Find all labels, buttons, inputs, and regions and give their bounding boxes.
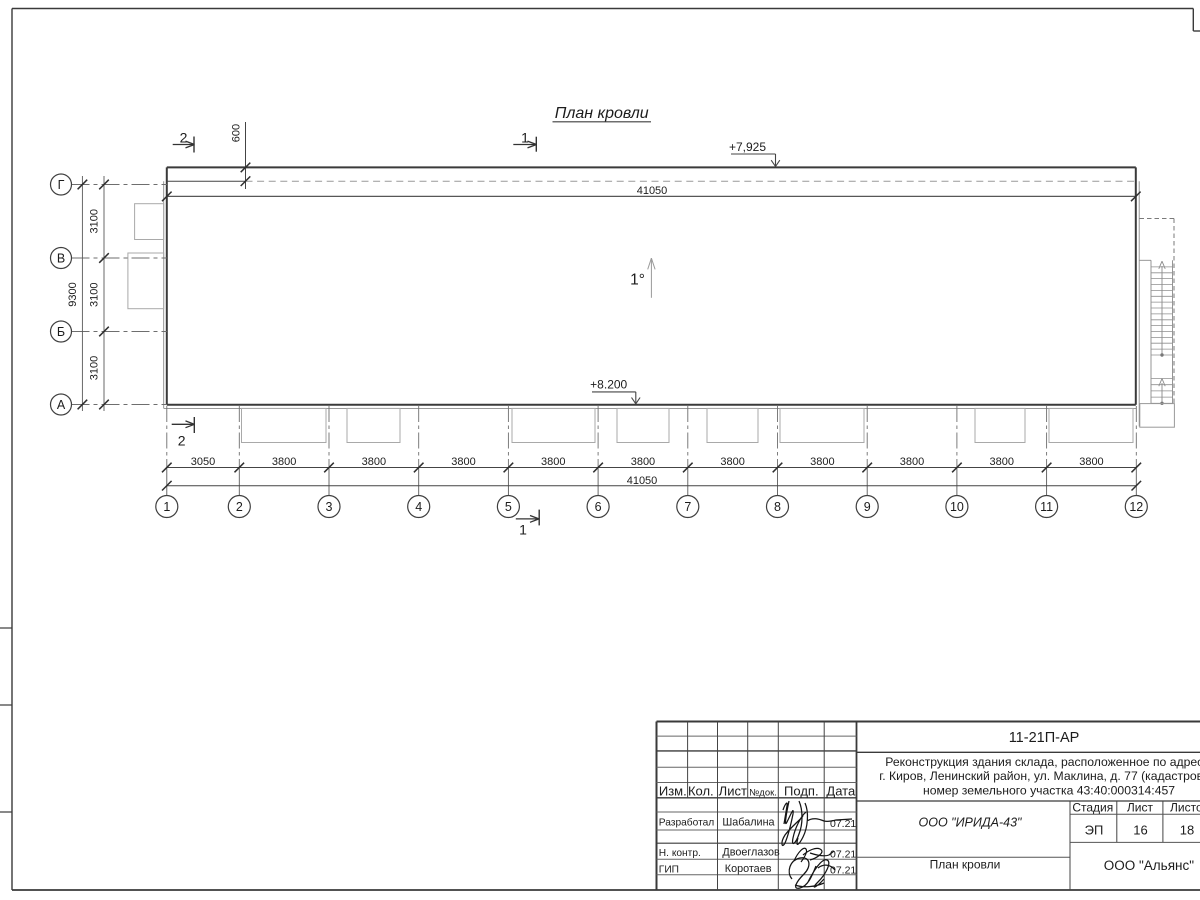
svg-text:№док.: №док.: [749, 788, 777, 799]
svg-text:5: 5: [505, 500, 512, 514]
svg-text:3800: 3800: [362, 456, 386, 468]
svg-text:3100: 3100: [89, 356, 101, 380]
svg-text:600: 600: [231, 124, 243, 142]
svg-text:Разработал: Разработал: [659, 817, 715, 829]
svg-text:3800: 3800: [631, 456, 655, 468]
svg-text:ЭП: ЭП: [1085, 823, 1104, 838]
svg-text:Лист: Лист: [719, 784, 747, 799]
svg-text:ГИП: ГИП: [659, 865, 679, 876]
svg-text:8: 8: [774, 500, 781, 514]
svg-text:3800: 3800: [990, 456, 1014, 468]
svg-text:Подп.: Подп.: [784, 784, 819, 799]
svg-text:Г: Г: [58, 178, 65, 192]
svg-text:+7,925: +7,925: [729, 140, 766, 154]
svg-text:Б: Б: [57, 325, 65, 339]
svg-text:3800: 3800: [720, 456, 744, 468]
svg-text:План кровли: План кровли: [555, 105, 649, 122]
svg-text:3050: 3050: [191, 456, 215, 468]
svg-text:1: 1: [521, 130, 529, 146]
svg-text:1: 1: [519, 522, 527, 538]
svg-text:3100: 3100: [89, 282, 101, 306]
svg-text:1°: 1°: [630, 272, 645, 289]
svg-text:+8.200: +8.200: [590, 378, 627, 392]
svg-text:41050: 41050: [627, 475, 658, 487]
svg-text:ООО "ИРИДА-43": ООО "ИРИДА-43": [919, 816, 1023, 830]
svg-text:Реконструкция здания склада, р: Реконструкция здания склада, расположенн…: [885, 755, 1200, 769]
svg-text:2: 2: [236, 500, 243, 514]
svg-text:4: 4: [415, 500, 422, 514]
svg-text:16: 16: [1133, 823, 1147, 838]
svg-text:07.21: 07.21: [830, 865, 856, 877]
svg-text:12: 12: [1129, 500, 1143, 514]
svg-text:Коротаев: Коротаев: [725, 863, 772, 875]
svg-text:ООО "Альянс": ООО "Альянс": [1104, 858, 1194, 873]
svg-text:2: 2: [178, 433, 186, 449]
svg-text:Стадия: Стадия: [1072, 801, 1113, 815]
svg-text:В: В: [57, 251, 65, 265]
svg-text:11-21П-АР: 11-21П-АР: [1009, 730, 1080, 746]
svg-text:3: 3: [326, 500, 333, 514]
svg-text:Н. контр.: Н. контр.: [659, 848, 701, 859]
svg-text:3800: 3800: [272, 456, 296, 468]
svg-text:г. Киров, Ленинский район, ул.: г. Киров, Ленинский район, ул. Маклина, …: [879, 769, 1200, 783]
svg-text:41050: 41050: [637, 185, 668, 197]
svg-text:9300: 9300: [67, 282, 79, 306]
svg-text:18: 18: [1180, 823, 1194, 838]
svg-text:номер земельного участка 43:40: номер земельного участка 43:40:000314:45…: [923, 783, 1175, 797]
svg-text:Двоеглазов: Двоеглазов: [722, 847, 780, 859]
svg-text:2: 2: [180, 130, 188, 146]
svg-text:План кровли: План кровли: [930, 857, 1001, 871]
svg-text:3800: 3800: [451, 456, 475, 468]
svg-text:07.21: 07.21: [830, 849, 856, 861]
svg-text:7: 7: [684, 500, 691, 514]
svg-text:3800: 3800: [810, 456, 834, 468]
svg-text:Дата: Дата: [826, 784, 856, 799]
svg-text:1: 1: [163, 500, 170, 514]
svg-text:3100: 3100: [89, 209, 101, 233]
svg-text:6: 6: [595, 500, 602, 514]
svg-text:А: А: [57, 398, 66, 412]
svg-text:Кол.: Кол.: [688, 784, 714, 799]
svg-text:10: 10: [950, 500, 964, 514]
svg-text:3800: 3800: [900, 456, 924, 468]
svg-text:9: 9: [864, 500, 871, 514]
svg-text:Листов: Листов: [1170, 801, 1200, 815]
svg-text:3800: 3800: [541, 456, 565, 468]
svg-text:3800: 3800: [1079, 456, 1103, 468]
svg-text:Лист: Лист: [1127, 801, 1154, 815]
svg-text:Шабалина: Шабалина: [722, 817, 774, 829]
svg-text:11: 11: [1040, 500, 1053, 514]
svg-text:Изм.: Изм.: [659, 784, 687, 799]
